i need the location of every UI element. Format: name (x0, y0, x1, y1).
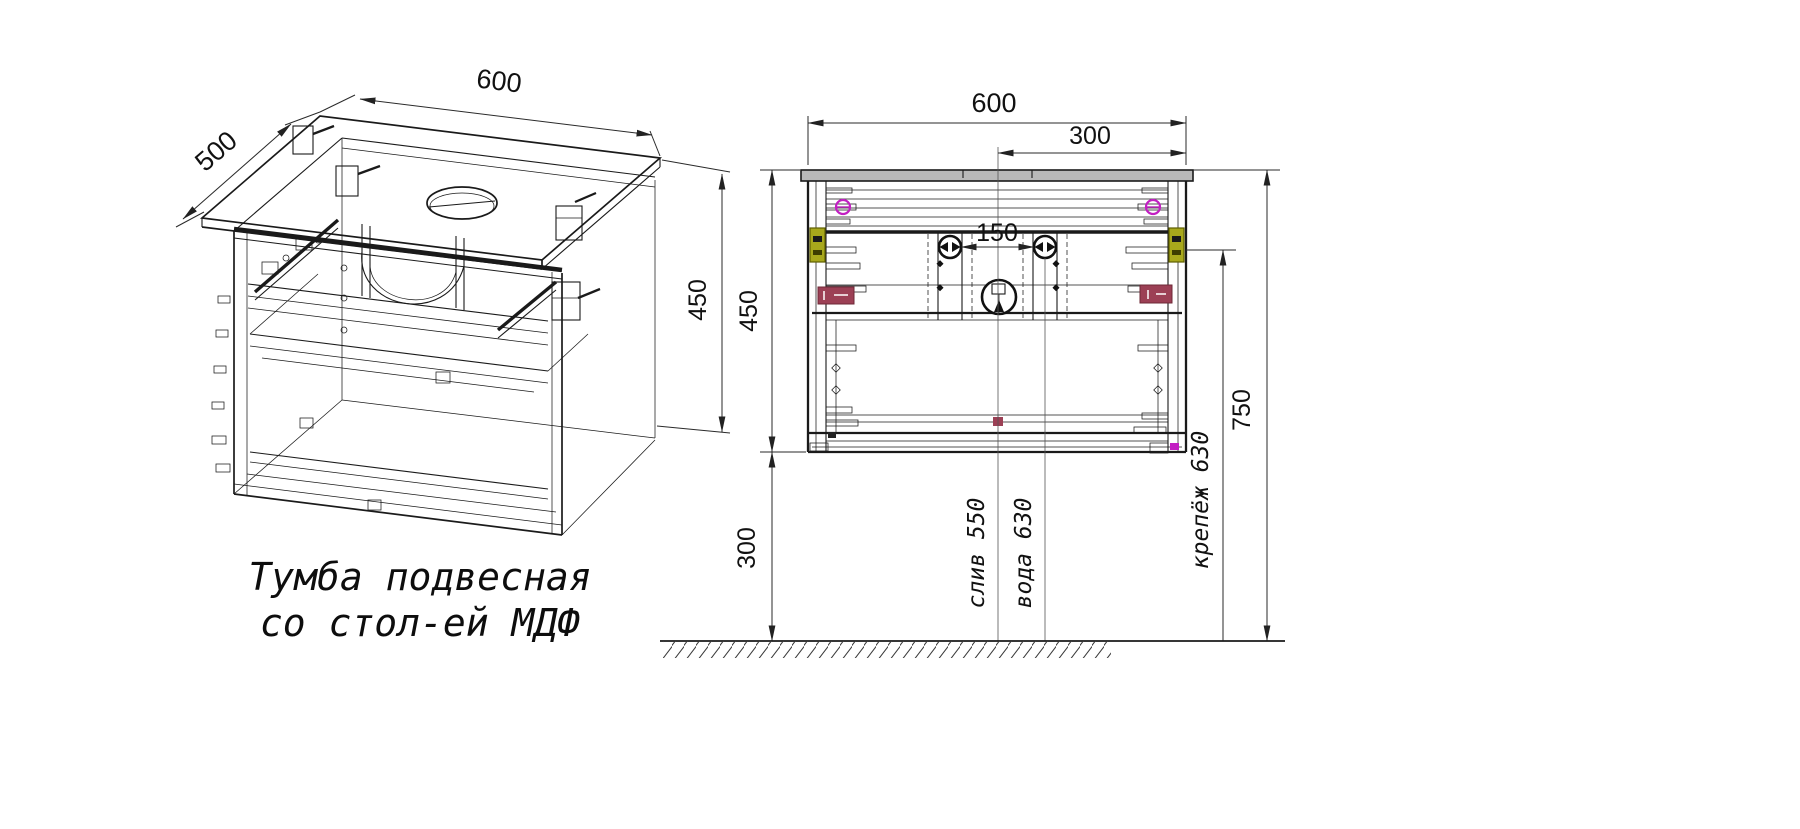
front-height-dim-label: 450 (735, 290, 763, 332)
water-height-label: вода 630 (1011, 498, 1037, 609)
iso-width-dim-label: 600 (475, 63, 523, 98)
front-right-offset-dim-label: 300 (1069, 122, 1111, 150)
front-view: 600 300 150 450 300 750 крепёж 630 слив (733, 88, 1280, 641)
front-countertop (801, 170, 1193, 181)
front-slide-bracket-right (1140, 285, 1172, 303)
drawing-page: 500 600 450 Тумба подвесная со стол-ей М… (0, 0, 1800, 829)
front-slide-bracket-left (818, 287, 854, 304)
floor-hatching (663, 641, 1111, 658)
floor-line (660, 641, 1285, 658)
front-mount-bracket-left (810, 228, 825, 262)
floor-gap-dim-label: 300 (733, 527, 761, 569)
drain-height-label: слив 550 (964, 498, 990, 609)
iso-sink-hole (427, 187, 497, 219)
faucet-spacing-dim-label: 150 (976, 219, 1018, 247)
iso-cabinet-body (212, 126, 655, 535)
front-width-dim-label: 600 (971, 88, 1016, 118)
drawing-title-line2: со стол-ей МДФ (260, 601, 580, 645)
iso-depth-dim-label: 500 (189, 125, 243, 177)
iso-right-drawer-slide (498, 282, 556, 338)
drawing-title-line1: Тумба подвесная (248, 555, 591, 599)
front-drain (982, 280, 1016, 314)
iso-countertop (202, 116, 660, 269)
iso-height-dim-label: 450 (684, 279, 712, 321)
front-bottom-magenta-mark (1170, 443, 1179, 450)
iso-sink-cutout (362, 224, 464, 310)
iso-screws (212, 265, 450, 510)
front-mount-bracket-right (1169, 228, 1184, 262)
total-height-dim-label: 750 (1228, 389, 1256, 431)
mount-height-label: крепёж 630 (1188, 431, 1214, 569)
technical-drawing-canvas: 500 600 450 Тумба подвесная со стол-ей М… (0, 0, 1800, 829)
isometric-view: 500 600 450 Тумба подвесная со стол-ей М… (176, 63, 730, 645)
iso-right-hinges (552, 193, 600, 320)
iso-top-left-hinges (293, 126, 380, 196)
